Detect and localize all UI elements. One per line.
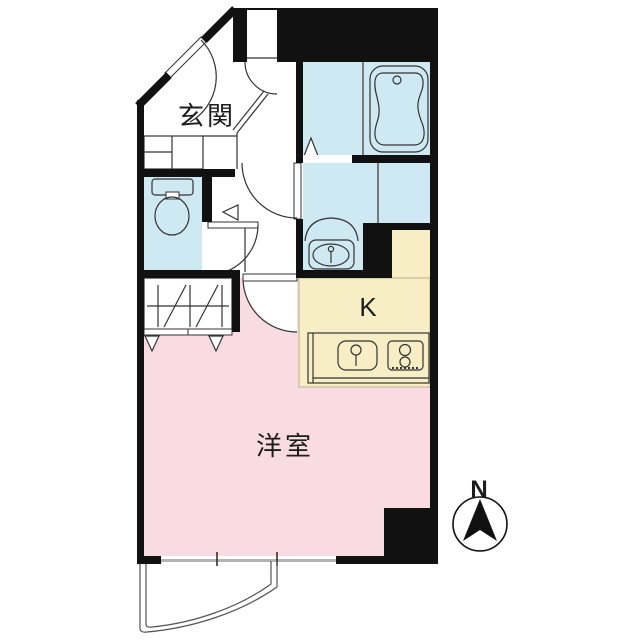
entry-recess xyxy=(247,10,277,62)
wall-kitchen-notch-top xyxy=(392,223,430,230)
wall-kitchen-notch xyxy=(363,223,392,278)
kitchen-floor-notch xyxy=(392,230,430,278)
wall-toilet-right xyxy=(202,177,212,222)
closet-door-track-right xyxy=(188,329,232,335)
wall-toilet-top xyxy=(137,169,235,177)
wall-right xyxy=(430,8,438,564)
closet-door-track-left xyxy=(144,329,188,335)
floor-plan-image: N 玄関 洋室 K xyxy=(0,0,640,640)
wall-bathroom-bottom xyxy=(352,155,430,163)
hall-door-leaf xyxy=(243,274,297,281)
bathroom-door-opening xyxy=(303,155,352,163)
wall-bottom-left xyxy=(137,556,161,564)
western-room-label: 洋室 xyxy=(256,431,314,461)
washroom-floor-upper xyxy=(303,163,430,223)
washroom-door-leaf xyxy=(294,163,301,219)
corridor-door-leaf xyxy=(208,222,258,228)
window-glass xyxy=(161,559,336,562)
floor-plan-svg: N 玄関 洋室 K xyxy=(0,0,640,640)
closet-box xyxy=(144,278,232,332)
wall-corner-block xyxy=(384,508,438,564)
entrance-label: 玄関 xyxy=(178,101,236,131)
bathroom-floor xyxy=(303,62,430,155)
wall-washroom-left-lower xyxy=(296,219,303,278)
wall-toilet-bottom xyxy=(137,270,240,278)
wall-washroom-left-upper xyxy=(296,62,303,163)
wall-closet-right xyxy=(232,278,240,332)
kitchen-label: K xyxy=(359,292,377,322)
